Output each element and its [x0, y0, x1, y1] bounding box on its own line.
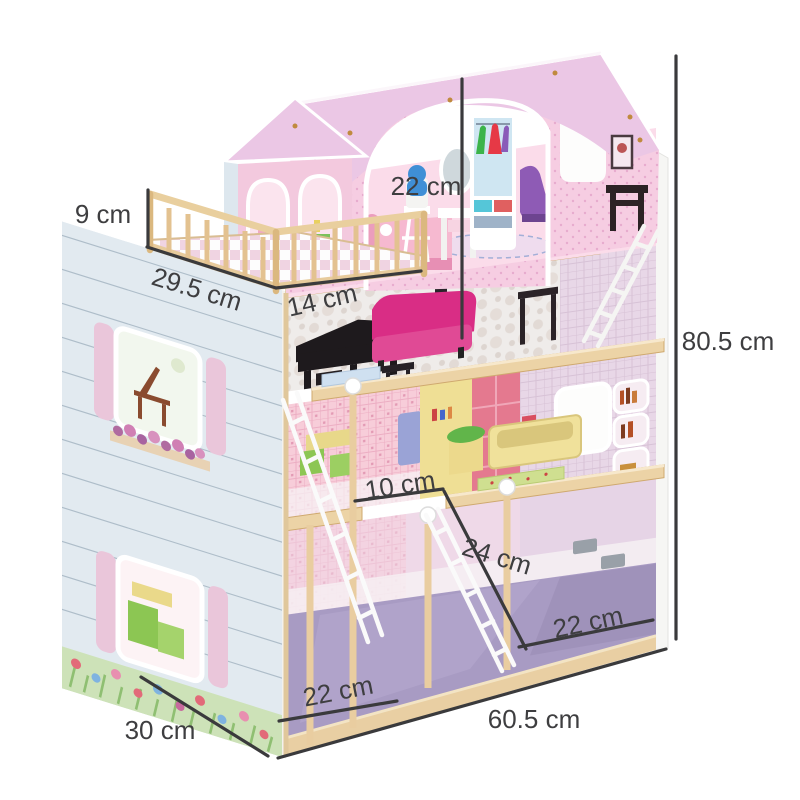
side-facade	[62, 221, 287, 758]
wardrobe	[470, 112, 516, 250]
dimension-label-total-height: 80.5 cm	[682, 328, 775, 354]
bookshelf-print	[614, 379, 648, 482]
dimension-label-top-floor-height: 22 cm	[391, 173, 462, 199]
toilet	[447, 424, 485, 475]
dimension-label-balcony-height: 9 cm	[75, 201, 131, 227]
dimension-label-total-width: 60.5 cm	[488, 706, 581, 732]
dimension-label-total-depth: 30 cm	[125, 717, 196, 743]
product-dimension-image: 9 cm 29.5 cm 14 cm 22 cm 80.5 cm 10 cm 2…	[0, 0, 800, 800]
dollhouse-illustration	[0, 0, 800, 800]
